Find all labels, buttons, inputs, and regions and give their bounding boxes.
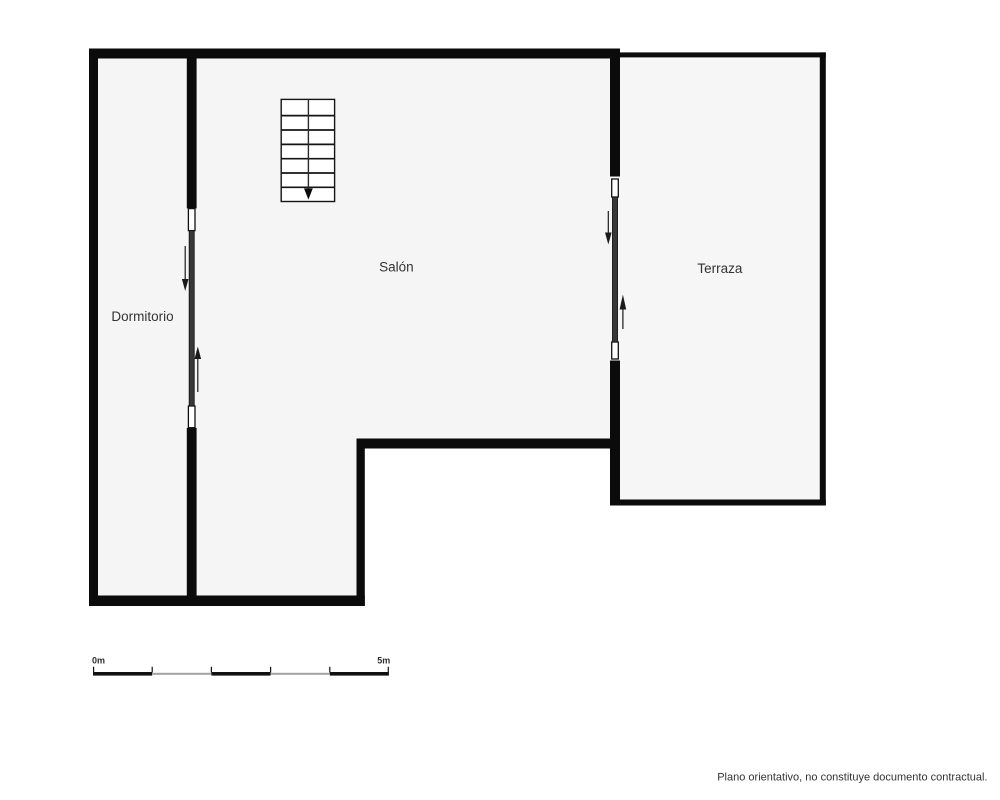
svg-text:Salón: Salón bbox=[379, 259, 414, 274]
svg-text:Dormitorio: Dormitorio bbox=[111, 309, 173, 324]
svg-text:5m: 5m bbox=[377, 656, 390, 666]
svg-text:0m: 0m bbox=[92, 656, 105, 666]
svg-text:Terraza: Terraza bbox=[697, 261, 743, 276]
svg-text:Plano orientativo, no constitu: Plano orientativo, no constituye documen… bbox=[717, 772, 987, 784]
